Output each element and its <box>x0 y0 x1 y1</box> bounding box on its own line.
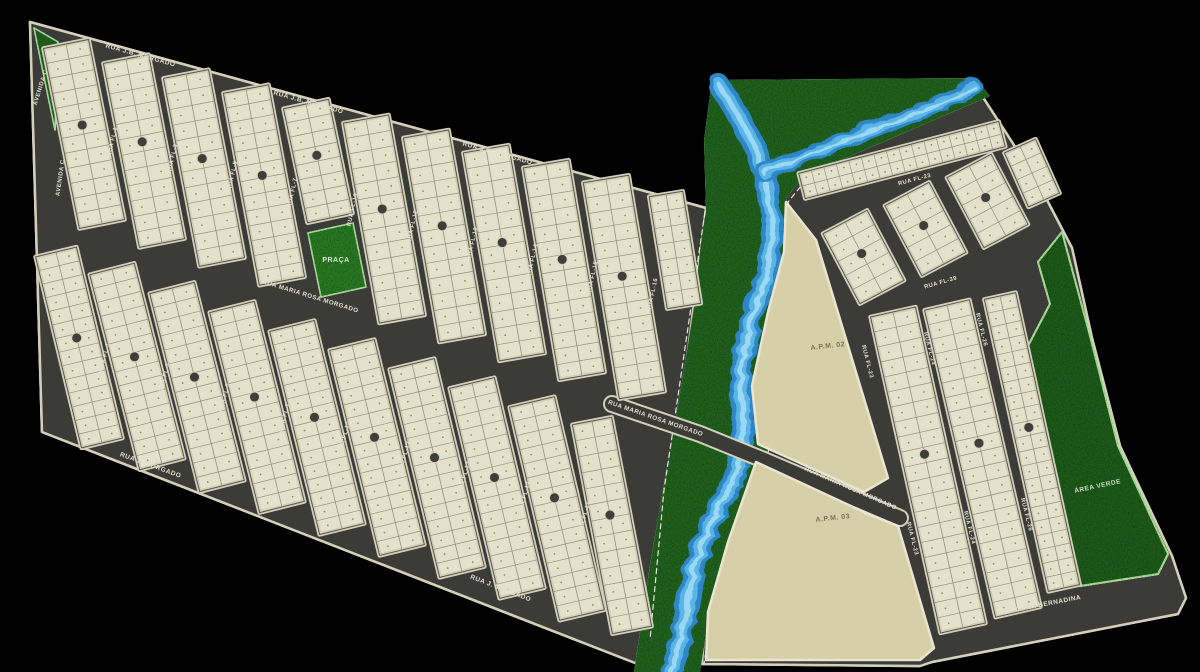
block-number-marker <box>437 221 447 231</box>
block-number-marker <box>974 438 984 448</box>
block-number-marker <box>550 493 560 503</box>
block-number-marker <box>497 238 507 248</box>
subdivision-plat-map: RUA J.B. MORGADORUA J.B. MORGADORUA J.B.… <box>0 0 1200 672</box>
praca-label: PRAÇA <box>322 257 349 264</box>
block-number-marker <box>857 249 867 259</box>
block-number-marker <box>137 137 147 147</box>
block-number-marker <box>250 392 260 402</box>
block-number-marker <box>310 412 320 422</box>
block-number-marker <box>72 333 82 343</box>
block-number-marker <box>190 372 200 382</box>
block-number-marker <box>920 449 930 459</box>
block-number-marker <box>377 204 387 214</box>
block-number-marker <box>430 453 440 463</box>
block-number-marker <box>257 170 267 180</box>
block-number-marker <box>981 193 991 203</box>
block-number-marker <box>490 473 500 483</box>
subdivision-map-stage: RUA J.B. MORGADORUA J.B. MORGADORUA J.B.… <box>0 0 1200 672</box>
block-number-marker <box>557 254 567 264</box>
block-number-marker <box>197 154 207 164</box>
block-number-marker <box>1024 422 1034 432</box>
block-number-marker <box>919 221 929 231</box>
block-number-marker <box>77 120 87 130</box>
block-number-marker <box>370 432 380 442</box>
block-number-marker <box>130 352 140 362</box>
block-number-marker <box>605 510 615 520</box>
block-number-marker <box>617 271 627 281</box>
block-number-marker <box>312 150 322 160</box>
